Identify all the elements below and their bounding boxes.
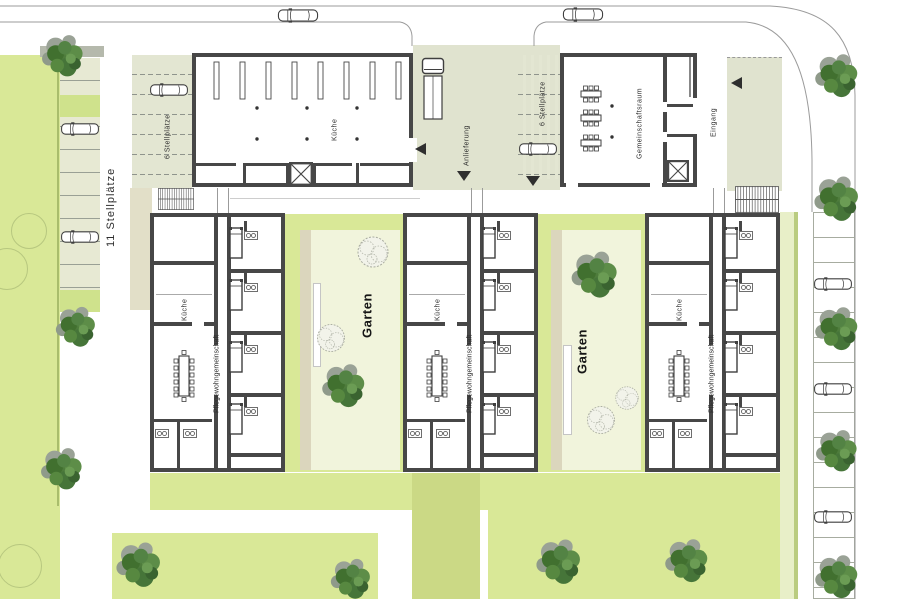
garden-court-1-border — [300, 230, 311, 470]
south-lawn-right — [488, 510, 780, 599]
corridor-link — [228, 188, 229, 213]
label-delivery: Anlieferung — [460, 121, 474, 171]
door-opening — [566, 183, 578, 191]
entrance-opening — [693, 98, 701, 134]
label-parking-6-west: 6 Stellplätze — [161, 113, 175, 161]
wall — [722, 393, 776, 397]
parking-column-east — [813, 212, 855, 599]
direction-arrow-icon — [731, 77, 742, 89]
label-care-unit-3: Pflegewohngemeinschaft — [705, 326, 719, 422]
wall — [739, 335, 742, 345]
wall — [739, 273, 742, 283]
wall — [243, 163, 246, 187]
door-opening — [687, 322, 699, 326]
door-opening — [445, 322, 457, 326]
wall — [739, 397, 742, 407]
lawn-left — [0, 55, 60, 599]
wall — [430, 422, 433, 468]
wall — [480, 393, 534, 397]
car-icon — [278, 8, 317, 22]
wall — [722, 453, 776, 457]
wall — [497, 335, 500, 345]
direction-arrow-icon — [457, 171, 471, 181]
wall — [196, 163, 236, 166]
glass-wall — [689, 57, 691, 97]
label-entrance: Eingang — [707, 100, 721, 144]
lawn-circle — [11, 213, 47, 249]
tree-icon — [56, 307, 95, 347]
canopy-line — [230, 198, 420, 199]
wall — [244, 397, 247, 407]
service-building — [192, 53, 413, 187]
wall — [227, 331, 281, 335]
corridor-link — [724, 188, 725, 213]
wall — [480, 217, 484, 468]
label-kitchen-service: Küche — [328, 112, 342, 148]
wall — [360, 163, 409, 166]
wall — [244, 335, 247, 345]
wall — [649, 261, 709, 265]
label-care-unit-1: Pflegewohngemeinschaft — [210, 326, 224, 422]
hedge-line — [57, 58, 59, 506]
wall — [722, 331, 776, 335]
label-parking-6-east: 6 Stellplätze — [536, 80, 550, 128]
wall — [407, 419, 465, 422]
label-kitchen-wing3: Küche — [673, 295, 687, 325]
door-opening — [650, 183, 662, 191]
wall — [667, 134, 693, 137]
wall — [649, 419, 707, 422]
gray-edge-band — [40, 46, 104, 57]
wall — [244, 221, 247, 231]
corridor-link — [713, 188, 714, 213]
wall — [663, 142, 667, 183]
wall — [154, 419, 212, 422]
garden-court-2-border — [551, 230, 562, 470]
wall — [177, 422, 180, 468]
wall — [227, 453, 281, 457]
wall — [722, 269, 776, 273]
wall — [227, 393, 281, 397]
tree-icon — [815, 54, 857, 97]
wall — [480, 269, 534, 273]
garden-bench — [313, 283, 321, 367]
wall — [497, 397, 500, 407]
label-kitchen-wing2: Küche — [431, 295, 445, 325]
corridor-link — [217, 188, 218, 213]
wall — [497, 273, 500, 283]
label-garden-1: Garten — [360, 290, 374, 342]
wall — [154, 261, 214, 265]
wall — [739, 221, 742, 231]
walkway-west — [130, 188, 152, 310]
wall — [407, 261, 467, 265]
wall — [722, 217, 726, 468]
path-strip-edge — [794, 212, 798, 599]
wall — [313, 163, 316, 187]
wall — [244, 273, 247, 283]
door-opening — [192, 322, 204, 326]
corridor-link — [471, 188, 472, 213]
wall — [286, 163, 289, 187]
corridor-link — [482, 188, 483, 213]
label-kitchen-wing1: Küche — [178, 295, 192, 325]
community-building — [560, 53, 697, 187]
wall — [246, 163, 286, 166]
wall — [672, 422, 675, 468]
site-plan: 11 Stellplätze 6 Stellplätze Küche Anlie… — [0, 0, 900, 599]
lawn-circle — [0, 544, 42, 588]
south-lawn-strip — [112, 533, 378, 599]
wall — [497, 221, 500, 231]
stairs-icon — [158, 188, 194, 210]
direction-arrow-icon — [415, 143, 426, 155]
wall — [663, 112, 667, 132]
green-axis-band — [412, 473, 480, 599]
garden-bench — [563, 345, 572, 435]
wall — [356, 163, 359, 187]
planting-island — [60, 290, 100, 312]
label-care-unit-2: Pflegewohngemeinschaft — [463, 326, 477, 422]
wall — [227, 217, 231, 468]
wall — [480, 331, 534, 335]
wall — [667, 104, 693, 107]
wall — [663, 57, 667, 102]
label-parking-11: 11 Stellplätze — [104, 166, 118, 248]
car-icon — [563, 7, 602, 21]
label-garden-2: Garten — [575, 326, 589, 378]
planting-island — [60, 95, 100, 117]
wall — [227, 269, 281, 273]
wall — [480, 453, 534, 457]
label-community-room: Gemeinschaftsraum — [633, 84, 647, 162]
wall — [316, 163, 352, 166]
direction-arrow-icon — [526, 176, 540, 186]
